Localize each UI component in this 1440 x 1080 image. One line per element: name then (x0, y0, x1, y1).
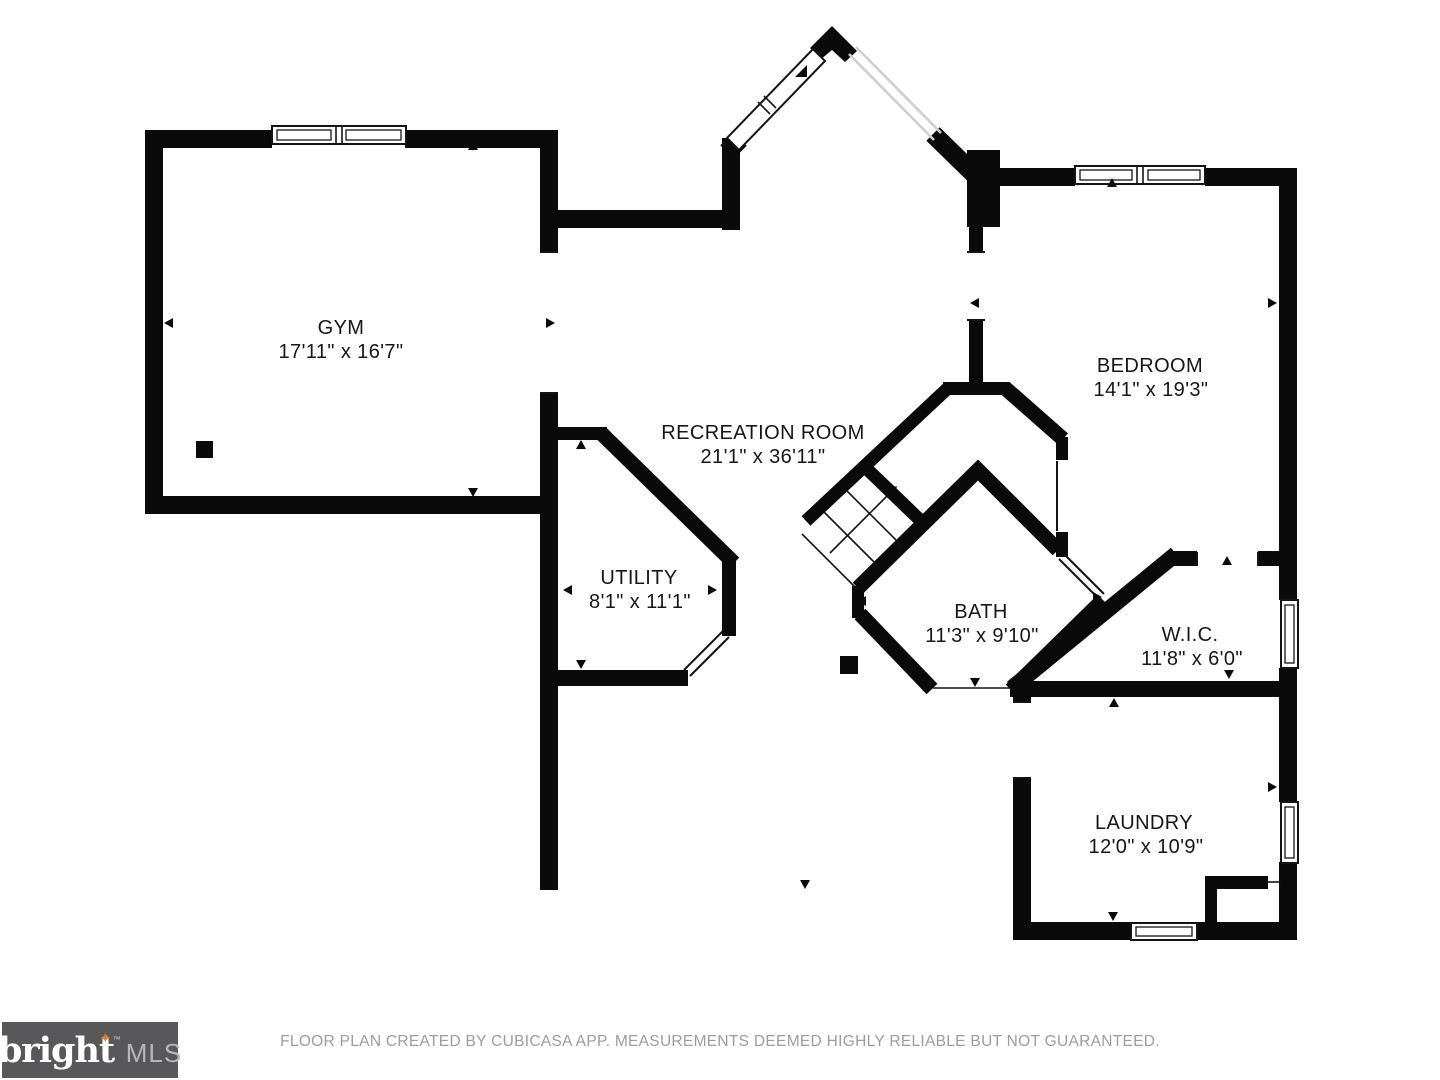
laundry-east-window (1281, 802, 1298, 863)
marker (970, 298, 979, 308)
closet-wall (1205, 876, 1217, 922)
marker (546, 318, 555, 328)
disclaimer-text: FLOOR PLAN CREATED BY CUBICASA APP. MEAS… (0, 1033, 1440, 1051)
recreation-room-label: RECREATION ROOM (661, 422, 864, 444)
staircase (802, 486, 901, 589)
laundry-dims: 12'0" x 10'9" (1089, 836, 1204, 858)
marker (970, 678, 980, 687)
wall-segment (1005, 388, 1063, 439)
recreation-room-dims: 21'1" x 36'11" (701, 446, 826, 468)
stair-tread (802, 534, 857, 589)
marker (1268, 298, 1277, 308)
wall-segment (540, 130, 558, 252)
floor-plan-drawing: GYM 17'11" x 16'7" RECREATION ROOM 21'1"… (0, 0, 1440, 1080)
wall-segment (1013, 779, 1031, 922)
bedroom-window (1075, 166, 1205, 184)
marker (563, 585, 572, 595)
bath-dims: 11'3" x 9'10" (925, 625, 1038, 647)
wall-segment (967, 150, 1000, 227)
wall-segment (943, 382, 1010, 395)
laundry-label: LAUNDRY (1095, 812, 1193, 834)
wall-segment (552, 670, 688, 686)
wall-segment (540, 394, 558, 890)
bay-window (727, 49, 825, 150)
gym-label: GYM (318, 317, 365, 339)
wall-segment (1258, 551, 1297, 566)
wall-segment (405, 130, 558, 148)
wall-segment (1197, 922, 1297, 940)
wall-segment (145, 130, 272, 148)
wall-segment (145, 496, 558, 514)
wall-segment (1013, 690, 1031, 702)
bedroom-label: BEDROOM (1097, 355, 1203, 377)
floor-plan-page: GYM 17'11" x 16'7" RECREATION ROOM 21'1"… (0, 0, 1440, 1080)
wall-segment (969, 321, 983, 391)
utility-door (690, 637, 729, 676)
wall-segment (1010, 681, 1297, 697)
wic-label: W.I.C. (1162, 624, 1219, 646)
marker (1108, 912, 1118, 921)
measurement-markers (164, 65, 1277, 921)
wall-segment (722, 556, 736, 636)
gym-dims: 17'11" x 16'7" (279, 341, 404, 363)
walls (145, 26, 1297, 940)
bath-door (1064, 554, 1104, 594)
marker (1224, 670, 1234, 679)
rec-room-column (840, 656, 858, 674)
utility-label: UTILITY (600, 567, 677, 589)
marker (1222, 556, 1232, 565)
gym-column (196, 441, 213, 458)
wall-segment (969, 227, 983, 252)
marker (468, 488, 478, 497)
marker (576, 660, 586, 669)
marker (1268, 782, 1277, 792)
stair-tread (824, 512, 879, 567)
wall-segment (558, 210, 737, 228)
bay-opening (849, 54, 934, 140)
wall-segment (1056, 437, 1068, 460)
bedroom-dims: 14'1" x 19'3" (1094, 379, 1209, 401)
marker (164, 318, 173, 328)
utility-dims: 8'1" x 11'1" (589, 591, 691, 613)
wall-segment (145, 130, 163, 514)
gym-window (272, 126, 406, 144)
laundry-south-window (1131, 923, 1197, 940)
wall-segment (1013, 922, 1131, 940)
marker (1109, 698, 1119, 707)
wic-dims: 11'8" x 6'0" (1141, 648, 1243, 670)
wall-segment (806, 388, 948, 521)
windows (272, 49, 1298, 940)
bath-label: BATH (954, 601, 1007, 623)
bath-wall (860, 614, 932, 689)
bay-opening (856, 47, 941, 133)
utility-door (684, 631, 723, 670)
wall-segment (996, 168, 1075, 186)
marker (800, 880, 810, 889)
marker (576, 440, 586, 449)
wall-segment (1170, 551, 1197, 566)
wall-segment (1279, 168, 1297, 600)
marker (708, 585, 717, 595)
wic-window (1281, 600, 1298, 668)
